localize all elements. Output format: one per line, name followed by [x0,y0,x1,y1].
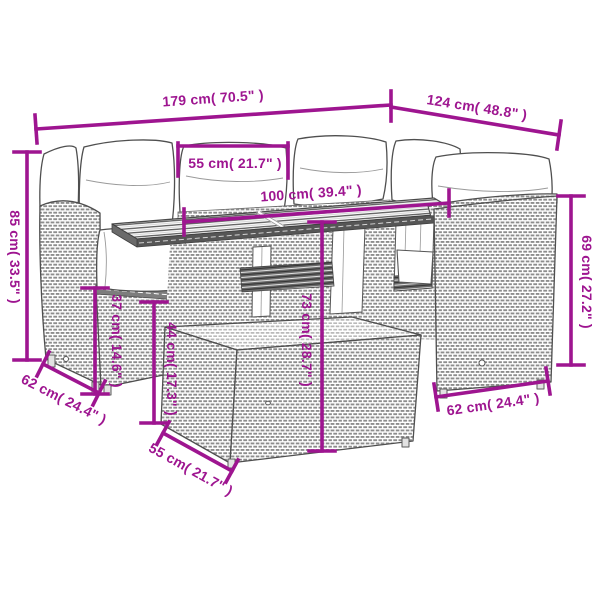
dimension-label-69: 69 cm( 27.2" ) [579,235,595,329]
dimension-label-85: 85 cm( 33.5" ) [7,210,23,304]
dimension-label-55-top: 55 cm( 21.7" ) [188,155,282,171]
chair-side-panel [434,196,557,391]
chair-seat-cushion [397,250,433,284]
product-dimension-diagram: 179 cm( 70.5" ) 124 cm( 48.8" ) 55 cm( 2… [0,0,600,600]
dimension-label-73: 73 cm( 28.7" ) [299,293,315,387]
dimension-label-37: 37 cm( 14.6" ) [109,294,125,388]
stool-cube [161,317,421,468]
dimension-label-44: 44 cm( 17.3" ) [164,322,180,416]
